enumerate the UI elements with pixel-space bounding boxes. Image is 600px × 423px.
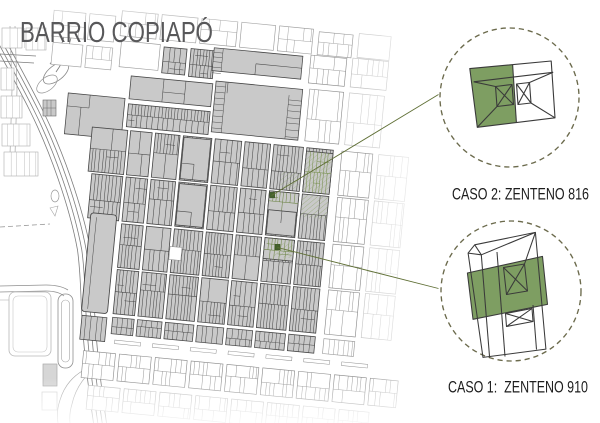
svg-text:CASO 2: ZENTENO 816: CASO 2: ZENTENO 816 bbox=[452, 185, 589, 204]
svg-text:BARRIO COPIAPÓ: BARRIO COPIAPÓ bbox=[20, 16, 213, 49]
svg-text:CASO 1: ZENTENO 910: CASO 1: ZENTENO 910 bbox=[448, 378, 588, 397]
